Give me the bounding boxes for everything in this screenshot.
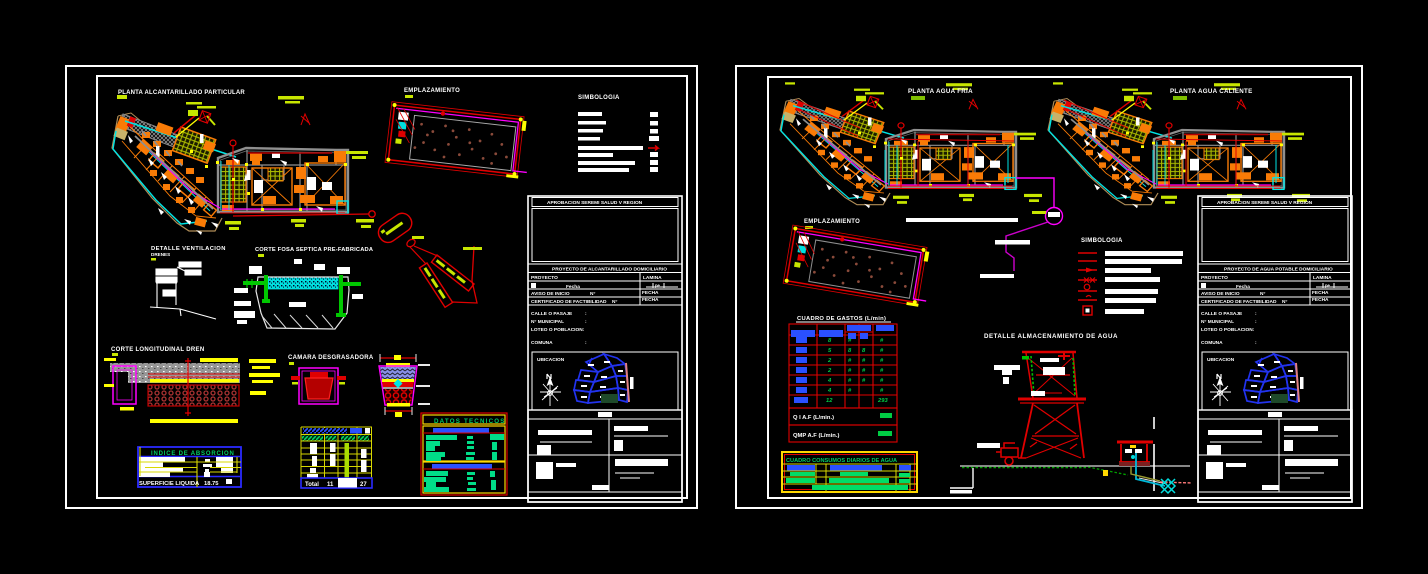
svg-text:DETALLE ALMACENAMIENTO DE AGUA: DETALLE ALMACENAMIENTO DE AGUA [984,333,1118,340]
svg-text:CUADRO CONSUMOS DIARIOS DE AGU: CUADRO CONSUMOS DIARIOS DE AGUA [786,458,897,464]
svg-text:COMUNA: COMUNA [531,340,553,346]
svg-text:CERTIFICADO DE FACTIBILIDAD: CERTIFICADO DE FACTIBILIDAD [531,299,607,305]
svg-text:Fecha: Fecha [566,284,580,290]
svg-text:AVISO DE INICIO: AVISO DE INICIO [531,291,570,297]
svg-text:PROYECTO: PROYECTO [531,275,558,281]
svg-text:FECHA: FECHA [642,297,659,303]
svg-text:EMPLAZAMIENTO: EMPLAZAMIENTO [404,88,460,94]
svg-text:SIMBOLOGIA: SIMBOLOGIA [1081,238,1123,244]
svg-text:CORTE FOSA SEPTICA PRE-FABRICA: CORTE FOSA SEPTICA PRE-FABRICADA [255,247,373,253]
svg-text:N° MUNICIPAL: N° MUNICIPAL [531,319,564,325]
svg-text:12: 12 [826,398,833,404]
svg-text:APROBACION SEREMI SALUD V REGI: APROBACION SEREMI SALUD V REGION [547,200,643,206]
svg-text:EMPLAZAMIENTO: EMPLAZAMIENTO [804,219,860,225]
svg-text:APROBACION SEREMI SALUD V REGI: APROBACION SEREMI SALUD V REGION [1217,200,1313,206]
svg-text:N°: N° [590,291,595,297]
svg-text:PLANTA ALCANTARILLADO PARTICUL: PLANTA ALCANTARILLADO PARTICULAR [118,90,245,96]
svg-text:CORTE LONGITUDINAL DREN: CORTE LONGITUDINAL DREN [111,347,204,353]
svg-text:QMP A.F (L/min.): QMP A.F (L/min.) [793,433,839,439]
svg-text:DATOS TECNICOS: DATOS TECNICOS [434,418,506,425]
svg-text:PROYECTO DE AGUA POTABLE DOMI: PROYECTO DE AGUA POTABLE DOMICILIARIO [1224,267,1333,273]
svg-text:FECHA: FECHA [642,290,659,296]
svg-text:27: 27 [360,482,367,488]
svg-text:293: 293 [877,398,888,404]
svg-text:CALLE O PASAJE: CALLE O PASAJE [531,311,573,317]
svg-text:CUADRO DE GASTOS (L/min): CUADRO DE GASTOS (L/min) [797,316,886,322]
svg-text:Total: Total [305,482,319,488]
svg-text:pe: pe [655,283,661,288]
svg-text:SUPERFICIE LIQUIDA: SUPERFICIE LIQUIDA [139,481,200,487]
svg-text:LOTEO O POBLACION:: LOTEO O POBLACION: [531,327,585,333]
svg-text:CAMARA DESGRASADORA: CAMARA DESGRASADORA [288,355,374,361]
svg-text:11: 11 [327,482,334,488]
svg-text:Q I A.F (L/min.): Q I A.F (L/min.) [793,415,834,421]
svg-text:18.75: 18.75 [204,481,219,487]
svg-text:DRENES: DRENES [151,252,170,257]
svg-text:LAMINA: LAMINA [643,275,662,281]
svg-text:PROYECTO DE ALCANTARILLADO DO: PROYECTO DE ALCANTARILLADO DOMICILIARIO [552,267,667,273]
svg-text:INDICE DE ABSORCION: INDICE DE ABSORCION [151,451,235,457]
svg-text:PLANTA AGUA FRIA: PLANTA AGUA FRIA [908,88,973,95]
svg-text:PLANTA AGUA CALIENTE: PLANTA AGUA CALIENTE [1170,88,1253,95]
svg-text:UBICACION: UBICACION [537,357,565,363]
svg-text:N°: N° [612,299,617,305]
svg-text:SIMBOLOGIA: SIMBOLOGIA [578,95,620,101]
